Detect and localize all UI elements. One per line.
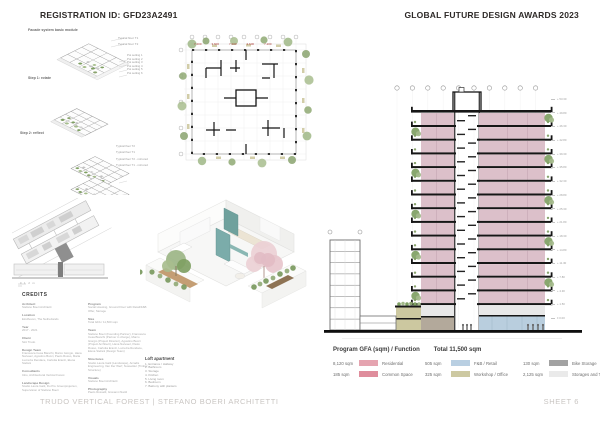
elevation-label: + 14.80 bbox=[551, 248, 589, 262]
credit-value: 2017 - 2021 bbox=[22, 329, 82, 333]
credit-value: Inbo, Architectural Vertical Forest bbox=[22, 374, 82, 378]
program-area: 185 sqm bbox=[333, 372, 357, 377]
loft-caption: Loft apartment 1. Entrance / Hallway2. B… bbox=[145, 356, 215, 389]
credit-value: Eindhoven, The Netherlands bbox=[22, 318, 82, 322]
detail-scale-note: 0 1 2 m bbox=[20, 282, 36, 285]
program-item: 2,125 sqm Storages and Technical bbox=[523, 371, 595, 377]
credit-group: Photography Paolo Rosselli, Giovanni Nar… bbox=[88, 387, 148, 395]
loft-apartment-isometric bbox=[140, 194, 312, 356]
credit-value: Stefano Boeri Architetti bbox=[22, 306, 82, 310]
footer-project-title: TRUDO VERTICAL FOREST | STEFANO BOERI AR… bbox=[40, 397, 279, 406]
credit-group: Team Stefano Boeri (Founding Partner), F… bbox=[88, 328, 148, 353]
credit-value: Francesca Cesa Bianchi, Marco Giorgio, H… bbox=[22, 352, 82, 366]
credit-value: Studio Laura Gatti, Du Pre Groenprojecte… bbox=[22, 385, 82, 392]
program-label: Workshop / Office bbox=[474, 372, 508, 377]
program-color-swatch bbox=[359, 371, 378, 377]
credit-group: Visuals Stefano Boeri Architetti bbox=[88, 376, 148, 384]
program-item: 505 sqm F&B / Retail bbox=[425, 360, 523, 366]
credit-group: Structures Studio Laura Gatti (Landscape… bbox=[88, 357, 148, 372]
program-area: 325 sqm bbox=[425, 372, 449, 377]
section-elevation-labels: + 53.30+ 49.80+ 46.30+ 42.80+ 39.30+ 35.… bbox=[551, 97, 589, 330]
elevation-label: + 46.30 bbox=[551, 124, 589, 138]
presentation-sheet: REGISTRATION ID: GFD23A2491 GLOBAL FUTUR… bbox=[0, 0, 600, 425]
program-column-3: 130 sqm Bike Storage 2,125 sqm Storages … bbox=[523, 360, 595, 382]
elevation-label: + 18.30 bbox=[551, 234, 589, 248]
plan-dimensions: 7.2003.6007.2003.6007.200 bbox=[194, 42, 272, 46]
facade-pot-label: Pot setting 6 bbox=[127, 72, 143, 76]
elevation-label: + 11.30 bbox=[551, 261, 589, 275]
credit-group: Architect Stefano Boeri Architetti bbox=[22, 302, 82, 310]
facade-floor-labels: Typical floor T1Typical floor T2 bbox=[118, 36, 138, 47]
elevation-label: ± 0.00 bbox=[551, 316, 589, 330]
program-label: F&B / Retail bbox=[474, 361, 497, 366]
program-area: 8,120 sqm bbox=[333, 361, 357, 366]
plan-dimension: 7.200 bbox=[194, 42, 202, 46]
credits-column-2: Program Social Housing, Ground Floor wit… bbox=[88, 302, 148, 398]
credit-group: Landscape Design Studio Laura Gatti, Du … bbox=[22, 381, 82, 392]
credit-group: Client Sint Trudo bbox=[22, 336, 82, 344]
credit-group: Year 2017 - 2021 bbox=[22, 325, 82, 333]
building-section bbox=[322, 80, 588, 342]
credit-value: Paolo Rosselli, Giovanni Nardi bbox=[88, 391, 148, 395]
elevation-label: + 42.80 bbox=[551, 138, 589, 152]
program-item: 325 sqm Workshop / Office bbox=[425, 371, 523, 377]
program-item: 185 sqm Common Space bbox=[333, 371, 425, 377]
credits-title: CREDITS bbox=[22, 292, 47, 298]
program-label: Storages and Technical bbox=[572, 372, 600, 377]
plan-dimension: 7.200 bbox=[264, 42, 272, 46]
elevation-label: + 4.30 bbox=[551, 289, 589, 303]
credits-column-1: Architect Stefano Boeri Architetti Locat… bbox=[22, 302, 82, 396]
program-label: Residential bbox=[382, 361, 403, 366]
program-color-swatch bbox=[451, 371, 470, 377]
credit-group: Program Social Housing, Ground Floor wit… bbox=[88, 302, 148, 313]
credit-group: Location Eindhoven, The Netherlands bbox=[22, 313, 82, 321]
program-area: 130 sqm bbox=[523, 361, 547, 366]
plan-dimension: 7.200 bbox=[229, 42, 237, 46]
program-column-2: 505 sqm F&B / Retail 325 sqm Workshop / … bbox=[425, 360, 523, 382]
program-area: 505 sqm bbox=[425, 361, 449, 366]
plan-dimension: 3.600 bbox=[212, 42, 220, 46]
footer-sheet-number: SHEET 6 bbox=[544, 397, 579, 406]
program-color-swatch bbox=[549, 371, 568, 377]
facade-detail-drawing bbox=[12, 198, 122, 290]
program-color-swatch bbox=[451, 360, 470, 366]
program-legend: Program GFA (sqm) / Function Total 11,50… bbox=[333, 347, 595, 382]
credit-value: Social Housing, Ground Floor with Retail… bbox=[88, 306, 148, 313]
elevation-label: + 53.30 bbox=[551, 97, 589, 111]
credit-group: Consultants Inbo, Architectural Vertical… bbox=[22, 369, 82, 377]
typical-floor-plan bbox=[176, 32, 314, 168]
elevation-label: + 25.30 bbox=[551, 207, 589, 221]
elevation-label: + 32.30 bbox=[551, 179, 589, 193]
elevation-label: + 7.80 bbox=[551, 275, 589, 289]
program-item: 130 sqm Bike Storage bbox=[523, 360, 595, 366]
registration-id: REGISTRATION ID: GFD23A2491 bbox=[40, 10, 178, 20]
program-label: Common Space bbox=[382, 372, 413, 377]
credit-value: Stefano Boeri Architetti bbox=[88, 380, 148, 384]
program-color-swatch bbox=[359, 360, 378, 366]
facade-floor-label: Typical floor T2 bbox=[118, 42, 138, 48]
program-color-swatch bbox=[549, 360, 568, 366]
program-area: 2,125 sqm bbox=[523, 372, 547, 377]
loft-room-list: 1. Entrance / Hallway2. Bathroom3. Stora… bbox=[145, 363, 215, 390]
plan-dimension: 3.600 bbox=[247, 42, 255, 46]
program-title: Program GFA (sqm) / Function bbox=[333, 347, 420, 353]
facade-mirror-labels: Typical floor T2Typical floor T1Typical … bbox=[116, 143, 148, 169]
credit-group: Size Total GFA / 11,500 sqm bbox=[88, 317, 148, 325]
elevation-label: + 1.50 bbox=[551, 302, 589, 316]
elevation-label: + 28.80 bbox=[551, 193, 589, 207]
credit-value: Total GFA / 11,500 sqm bbox=[88, 321, 148, 325]
elevation-label: + 49.80 bbox=[551, 111, 589, 125]
program-label: Bike Storage bbox=[572, 361, 597, 366]
facade-mirror-label: Typical floor T1 - mirrored bbox=[116, 162, 148, 168]
elevation-label: + 39.30 bbox=[551, 152, 589, 166]
loft-title: Loft apartment bbox=[145, 356, 215, 361]
credit-value: Stefano Boeri (Founding Partner), France… bbox=[88, 333, 148, 354]
program-column-1: 8,120 sqm Residential 185 sqm Common Spa… bbox=[333, 360, 425, 382]
program-total: Total 11,500 sqm bbox=[434, 347, 482, 353]
elevation-label: + 35.80 bbox=[551, 165, 589, 179]
award-title: GLOBAL FUTURE DESIGN AWARDS 2023 bbox=[404, 10, 579, 20]
facade-pot-labels: Pot setting 1Pot setting 2Pot setting 3P… bbox=[127, 54, 143, 75]
credit-value: Studio Laura Gatti (Landscape), Arcadis … bbox=[88, 362, 148, 373]
loft-room-item: 7. Balcony with planters bbox=[145, 385, 215, 389]
credit-group: Design Team Francesca Cesa Bianchi, Marc… bbox=[22, 348, 82, 366]
elevation-label: + 21.80 bbox=[551, 220, 589, 234]
program-item: 8,120 sqm Residential bbox=[333, 360, 425, 366]
credit-value: Sint Trudo bbox=[22, 341, 82, 345]
